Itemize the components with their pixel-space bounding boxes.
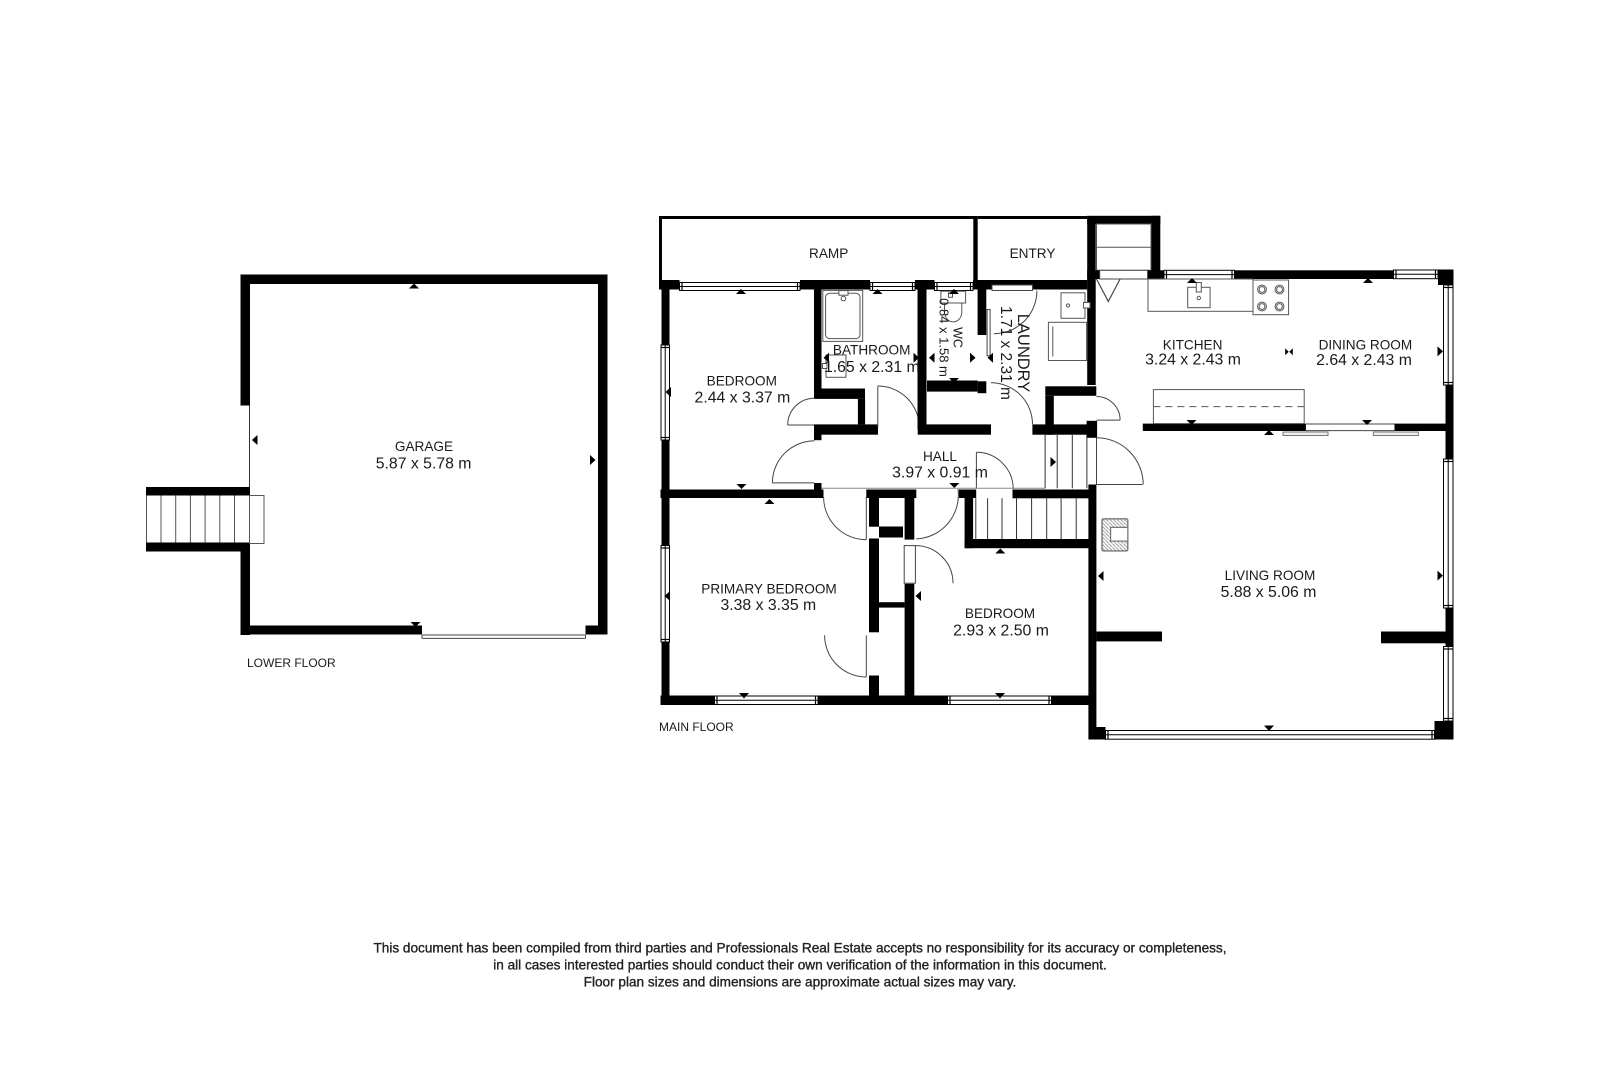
svg-text:LOWER FLOOR: LOWER FLOOR [247,656,336,670]
svg-text:PRIMARY BEDROOM: PRIMARY BEDROOM [701,581,836,596]
svg-text:KITCHEN: KITCHEN [1163,338,1223,353]
svg-text:GARAGE: GARAGE [395,439,453,454]
svg-text:1.65 x 2.31 m: 1.65 x 2.31 m [824,359,920,376]
svg-text:in all cases interested partie: in all cases interested parties should c… [493,957,1107,972]
svg-text:3.97 x 0.91 m: 3.97 x 0.91 m [892,465,988,482]
svg-text:WC: WC [951,327,965,348]
svg-text:2.64 x 2.43 m: 2.64 x 2.43 m [1316,352,1412,369]
svg-text:0.84 x 1.58 m: 0.84 x 1.58 m [937,298,952,377]
svg-text:3.24 x 2.43 m: 3.24 x 2.43 m [1145,351,1241,368]
svg-text:LAUNDRY: LAUNDRY [1014,314,1032,393]
svg-text:BEDROOM: BEDROOM [707,373,777,388]
svg-text:HALL: HALL [923,449,957,464]
svg-text:ENTRY: ENTRY [1010,246,1056,261]
svg-text:BATHROOM: BATHROOM [833,343,911,358]
svg-text:2.93 x 2.50 m: 2.93 x 2.50 m [953,622,1049,639]
svg-text:BEDROOM: BEDROOM [965,606,1035,621]
svg-text:Floor plan sizes and dimension: Floor plan sizes and dimensions are appr… [584,974,1017,989]
svg-text:5.87 x 5.78 m: 5.87 x 5.78 m [376,456,472,473]
svg-text:MAIN FLOOR: MAIN FLOOR [659,720,734,734]
svg-text:RAMP: RAMP [809,246,848,261]
svg-text:5.88 x 5.06 m: 5.88 x 5.06 m [1221,584,1317,601]
svg-text:DINING ROOM: DINING ROOM [1319,337,1413,352]
svg-text:2.44 x 3.37 m: 2.44 x 3.37 m [695,390,791,407]
svg-text:3.38 x 3.35 m: 3.38 x 3.35 m [720,597,816,614]
svg-text:1.71 x 2.31 m: 1.71 x 2.31 m [997,306,1014,400]
svg-text:This document has been compile: This document has been compiled from thi… [373,940,1226,955]
svg-text:LIVING ROOM: LIVING ROOM [1225,568,1316,583]
